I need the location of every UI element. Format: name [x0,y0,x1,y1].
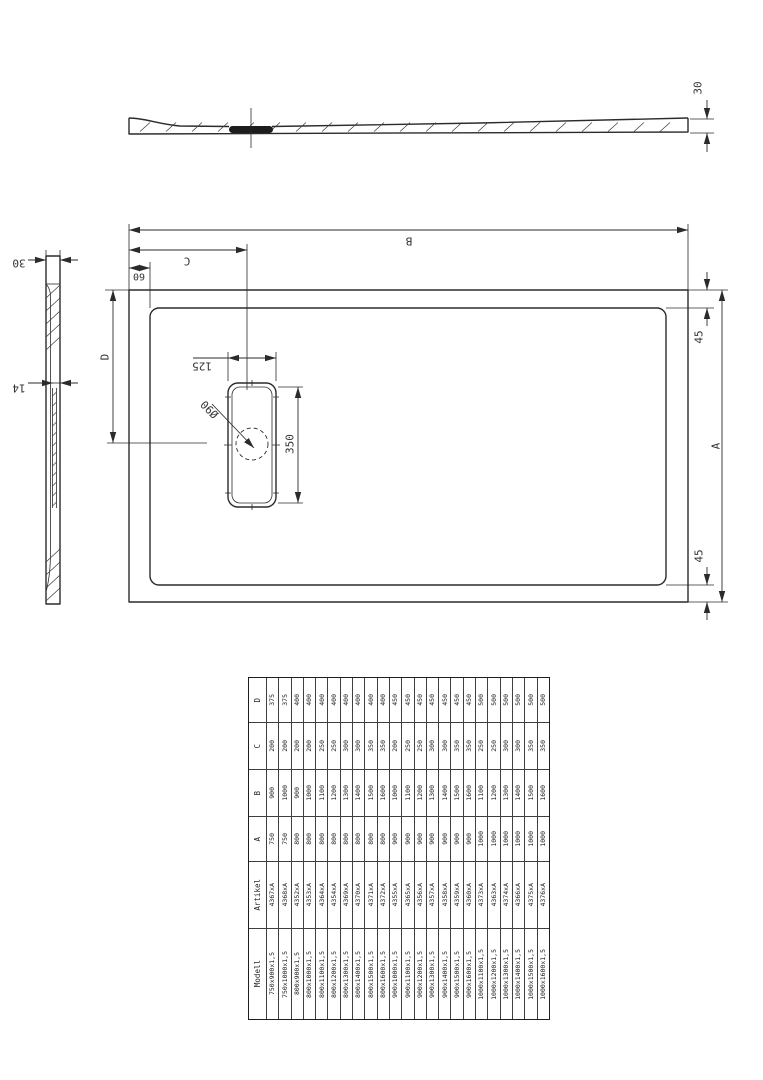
table-cell: 1000x1300x1,5 [500,928,512,1019]
table-cell: 500 [500,678,512,722]
table-cell-text: 250 [417,740,424,752]
top-profile-view: 30 [129,81,714,152]
dim-drain-offset-x: C [184,255,191,268]
table-cell: 200 [291,722,303,769]
table-cell-text: 1600 [466,785,473,801]
table-cell-text: 400 [380,694,387,706]
table-cell: 350 [450,722,462,769]
table-cell-text: 800x1200x1,5 [331,951,338,998]
table-cell: 900 [414,816,426,861]
table-cell-text: 750x900x1,5 [269,952,276,995]
table-cell: 1400 [438,769,450,816]
table-cell: 900x1500x1,5 [450,928,462,1019]
table-header-cell: Artikel [249,861,266,928]
table-cell-text: 250 [319,740,326,752]
table-cell: 1600 [463,769,475,816]
table-cell: 900x1000x1,5 [389,928,401,1019]
table-cell: 450 [389,678,401,722]
table-cell-text: 800 [368,833,375,845]
table-cell-text: 1200 [491,785,498,801]
table-header-text: D [254,698,262,703]
table-cell-text: 900x1300x1,5 [429,951,436,998]
table-cell-text: 1000 [306,785,313,801]
table-cell-text: 300 [343,740,350,752]
table-cell-text: 800 [355,833,362,845]
table-cell-text: 1000x1300x1,5 [503,949,510,1000]
drain-hole-circle [236,428,268,460]
dim-corner-top: 45 [693,330,706,343]
plan-view: Ø90 B C 60 125 350 D [99,224,729,620]
table-cell: 1000 [475,816,487,861]
table-cell: 1000 [512,816,524,861]
table-cell-text: 1000 [491,831,498,847]
table-cell-text: 800 [306,833,313,845]
dim-profile-height: 30 [692,81,705,94]
table-cell: 250 [475,722,487,769]
table-header-cell: C [249,722,266,769]
table-cell-text: 450 [466,694,473,706]
table-cell-text: 1000x1600x1,5 [540,949,547,1000]
table-cell-text: 4369xA [343,883,350,906]
table-cell: 300 [426,722,438,769]
table-cell-text: 450 [392,694,399,706]
table-cell-text: 900 [269,787,276,799]
table-cell-text: 900 [417,833,424,845]
table-cell-text: 1400 [355,785,362,801]
table-cell-text: 450 [405,694,412,706]
table-cell-text: 900x1000x1,5 [392,951,399,998]
table-cell: 900x1600x1,5 [463,928,475,1019]
table-cell: 4357xA [426,861,438,928]
table-cell-text: 250 [405,740,412,752]
table-cell: 250 [327,722,339,769]
table-cell-text: 800x900x1,5 [294,952,301,995]
table-cell-text: 500 [540,694,547,706]
table-cell-text: 1500 [368,785,375,801]
table-cell-text: 4373xA [478,883,485,906]
table-cell-text: 750 [282,833,289,845]
table-cell-text: 250 [491,740,498,752]
table-cell-text: 1600 [540,785,547,801]
table-cell: 4360xA [463,861,475,928]
table-cell-text: 1000x1500x1,5 [528,949,535,1000]
table-cell: 300 [438,722,450,769]
table-cell-text: 1500 [528,785,535,801]
table-header-cell: B [249,769,266,816]
table-cell: 4375xA [524,861,536,928]
table-cell: 450 [450,678,462,722]
table-cell-text: 900x1500x1,5 [454,951,461,998]
table-cell-text: 4359xA [454,883,461,906]
spec-table: DCBAArtikelModell3752009007504367xA750x9… [248,677,550,1020]
table-cell-text: 300 [442,740,449,752]
table-cell: 350 [364,722,376,769]
table-cell: 450 [401,678,413,722]
table-cell: 1100 [475,769,487,816]
table-cell: 1000x1500x1,5 [524,928,536,1019]
table-cell: 800 [327,816,339,861]
table-cell-text: 4357xA [429,883,436,906]
table-cell-text: 900 [405,833,412,845]
table-cell: 250 [315,722,327,769]
table-cell: 1400 [352,769,364,816]
table-cell-text: 800x1500x1,5 [368,951,375,998]
table-cell-text: 900x1600x1,5 [466,951,473,998]
table-header-text: Modell [254,960,262,987]
table-cell: 4364xA [315,861,327,928]
table-cell-text: 350 [528,740,535,752]
dim-corner-bottom: 45 [693,549,706,562]
table-cell: 300 [352,722,364,769]
table-cell: 4374xA [500,861,512,928]
table-cell-text: 900 [442,833,449,845]
table-cell-text: 300 [429,740,436,752]
table-cell-text: 200 [282,740,289,752]
table-cell-text: 1000x1200x1,5 [491,949,498,1000]
table-cell-text: 500 [491,694,498,706]
table-cell: 1600 [537,769,549,816]
table-cell: 800x1500x1,5 [364,928,376,1019]
table-cell-text: 900 [392,833,399,845]
table-cell: 1200 [414,769,426,816]
dim-drain-width: 125 [192,360,212,373]
table-cell: 1000 [487,816,499,861]
table-cell-text: 800x1100x1,5 [319,951,326,998]
table-cell: 900 [291,769,303,816]
table-cell: 1000x1400x1,5 [512,928,524,1019]
dim-drain-length: 350 [284,434,297,454]
table-cell: 4367xA [266,861,278,928]
table-cell: 1100 [401,769,413,816]
table-cell-text: 375 [269,694,276,706]
table-header-cell: D [249,678,266,722]
table-cell: 375 [266,678,278,722]
table-cell-text: 400 [368,694,375,706]
table-cell-text: 350 [368,740,375,752]
table-cell-text: 450 [429,694,436,706]
table-cell: 450 [463,678,475,722]
table-cell: 450 [438,678,450,722]
table-cell: 800x1300x1,5 [340,928,352,1019]
table-cell: 800x1400x1,5 [352,928,364,1019]
table-cell-text: 350 [466,740,473,752]
table-cell: 350 [524,722,536,769]
table-cell: 250 [414,722,426,769]
table-cell-text: 4367xA [269,883,276,906]
table-cell: 800x900x1,5 [291,928,303,1019]
table-cell-text: 1000x1100x1,5 [478,949,485,1000]
table-cell-text: 450 [417,694,424,706]
table-cell-text: 4354xA [331,883,338,906]
table-cell-text: 1600 [380,785,387,801]
table-cell-text: 750 [269,833,276,845]
table-cell: 1000 [537,816,549,861]
table-cell-text: 800x1300x1,5 [343,951,350,998]
table-cell-text: 4364xA [319,883,326,906]
table-cell: 900 [426,816,438,861]
table-cell: 350 [537,722,549,769]
table-cell-text: 4370xA [355,883,362,906]
table-cell-text: 4376xA [540,883,547,906]
table-cell: 200 [303,722,315,769]
table-cell-text: 4352xA [294,883,301,906]
table-cell-text: 750x1000x1,5 [282,951,289,998]
table-cell-text: 400 [294,694,301,706]
table-cell: 1000x1600x1,5 [537,928,549,1019]
table-cell: 800 [352,816,364,861]
table-cell: 300 [340,722,352,769]
table-cell-text: 4363xA [491,883,498,906]
table-cell: 750 [266,816,278,861]
table-cell: 200 [389,722,401,769]
table-cell-text: 400 [319,694,326,706]
shower-tray-drawing: 30 30 14 Ø90 [0,0,763,660]
table-cell-text: 900 [429,833,436,845]
table-cell-text: 4372xA [380,883,387,906]
table-cell: 500 [524,678,536,722]
dim-side-height: 30 [12,257,25,270]
table-cell: 900x1100x1,5 [401,928,413,1019]
table-cell: 900x1400x1,5 [438,928,450,1019]
table-cell-text: 1000 [392,785,399,801]
table-cell: 1000 [389,769,401,816]
table-cell-text: 250 [331,740,338,752]
table-cell: 1000x1100x1,5 [475,928,487,1019]
table-cell: 4356xA [414,861,426,928]
table-cell-text: 500 [528,694,535,706]
table-cell-text: 200 [269,740,276,752]
table-cell-text: 450 [454,694,461,706]
table-cell: 750x900x1,5 [266,928,278,1019]
table-cell: 400 [377,678,389,722]
table-cell-text: 4355xA [392,883,399,906]
table-cell: 1000 [500,816,512,861]
drain-recess: Ø90 [198,380,280,510]
dim-plan-length: B [405,235,412,248]
table-cell-text: 300 [355,740,362,752]
table-cell: 400 [291,678,303,722]
table-cell: 500 [512,678,524,722]
table-header-cell: A [249,816,266,861]
table-cell-text: 500 [478,694,485,706]
table-cell: 1600 [377,769,389,816]
table-cell-text: 4371xA [368,883,375,906]
table-cell: 900 [401,816,413,861]
table-cell-text: 450 [442,694,449,706]
table-cell: 1500 [364,769,376,816]
table-cell-text: 1000 [282,785,289,801]
table-cell: 900 [389,816,401,861]
table-cell: 900 [266,769,278,816]
table-cell: 800x1200x1,5 [327,928,339,1019]
table-cell: 300 [500,722,512,769]
table-cell: 4376xA [537,861,549,928]
table-cell-text: 1100 [478,785,485,801]
table-cell-text: 4366xA [515,883,522,906]
dim-side-wall: 14 [12,382,26,395]
table-cell: 1300 [500,769,512,816]
table-cell: 250 [401,722,413,769]
table-cell: 400 [352,678,364,722]
table-cell-text: 200 [294,740,301,752]
table-cell: 500 [487,678,499,722]
table-cell: 400 [364,678,376,722]
table-cell-text: 1000 [540,831,547,847]
table-cell: 400 [327,678,339,722]
table-cell-text: 1300 [503,785,510,801]
table-cell-text: 1000x1400x1,5 [515,949,522,1000]
table-cell: 1000 [278,769,290,816]
table-cell-text: 800x1400x1,5 [355,951,362,998]
table-cell-text: 400 [331,694,338,706]
table-cell: 1400 [512,769,524,816]
table-cell-text: 350 [380,740,387,752]
table-cell: 800x1600x1,5 [377,928,389,1019]
technical-drawing-page: 30 30 14 Ø90 [0,0,763,1080]
table-cell: 1000 [524,816,536,861]
table-cell-text: 4375xA [528,883,535,906]
table-cell: 800 [303,816,315,861]
table-cell: 450 [414,678,426,722]
table-cell: 750x1000x1,5 [278,928,290,1019]
table-cell-text: 800 [380,833,387,845]
dim-drain-offset-y: D [99,354,112,361]
table-cell: 900 [463,816,475,861]
table-cell: 4372xA [377,861,389,928]
table-cell: 1500 [450,769,462,816]
table-header-cell: Modell [249,928,266,1019]
table-cell: 800 [315,816,327,861]
table-cell-text: 900x1400x1,5 [442,951,449,998]
table-cell: 800 [364,816,376,861]
table-cell-text: 400 [355,694,362,706]
table-cell-text: 900 [294,787,301,799]
table-cell-text: 300 [503,740,510,752]
table-cell-text: 1400 [442,785,449,801]
table-cell-text: 400 [306,694,313,706]
table-cell: 4365xA [401,861,413,928]
table-cell: 4359xA [450,861,462,928]
table-cell: 4358xA [438,861,450,928]
table-cell: 1500 [524,769,536,816]
table-cell: 4366xA [512,861,524,928]
table-cell-text: 350 [454,740,461,752]
table-cell: 750 [278,816,290,861]
table-cell: 4368xA [278,861,290,928]
table-cell-text: 250 [478,740,485,752]
table-cell-text: 1000 [528,831,535,847]
table-cell-text: 1100 [319,785,326,801]
table-cell: 250 [487,722,499,769]
table-cell: 1000 [303,769,315,816]
table-header-text: Artikel [254,879,262,911]
table-cell-text: 900 [454,833,461,845]
table-cell-text: 350 [540,740,547,752]
table-cell: 900 [450,816,462,861]
table-cell-text: 500 [503,694,510,706]
table-cell: 450 [426,678,438,722]
table-cell: 500 [537,678,549,722]
table-cell-text: 1100 [405,785,412,801]
table-cell-text: 1000 [515,831,522,847]
table-cell: 800 [377,816,389,861]
table-cell: 800x1000x1,5 [303,928,315,1019]
table-cell: 800x1100x1,5 [315,928,327,1019]
table-header-text: C [254,744,262,749]
table-cell-text: 1300 [429,785,436,801]
table-cell: 4363xA [487,861,499,928]
table-cell-text: 900x1200x1,5 [417,951,424,998]
table-cell: 1100 [315,769,327,816]
table-cell-text: 800x1000x1,5 [306,951,313,998]
table-cell: 1000x1200x1,5 [487,928,499,1019]
table-cell: 4373xA [475,861,487,928]
table-cell-text: 1400 [515,785,522,801]
table-cell-text: 900x1100x1,5 [405,951,412,998]
table-cell: 900 [438,816,450,861]
table-cell-text: 200 [392,740,399,752]
table-cell-text: 1000 [503,831,510,847]
table-cell: 1200 [327,769,339,816]
table-cell-text: 800x1600x1,5 [380,951,387,998]
table-cell: 400 [315,678,327,722]
dim-drain-diameter: Ø90 [198,398,221,421]
table-cell: 1300 [340,769,352,816]
side-section-view: 30 14 [12,250,78,604]
dim-edge-offset: 60 [133,271,145,282]
table-cell: 375 [278,678,290,722]
table-cell: 400 [303,678,315,722]
table-cell-text: 1500 [454,785,461,801]
table-cell-text: 375 [282,694,289,706]
table-cell: 200 [266,722,278,769]
table-cell: 1300 [426,769,438,816]
dim-plan-width: A [710,442,723,449]
table-cell: 900x1200x1,5 [414,928,426,1019]
table-header-text: B [254,791,262,796]
table-cell-text: 4360xA [466,883,473,906]
table-cell: 4355xA [389,861,401,928]
table-cell-text: 1000 [478,831,485,847]
drain-channel-section [53,388,57,508]
table-cell: 4370xA [352,861,364,928]
table-cell: 4352xA [291,861,303,928]
table-cell: 4353xA [303,861,315,928]
table-cell: 500 [475,678,487,722]
table-cell: 350 [377,722,389,769]
table-cell: 800 [340,816,352,861]
table-cell-text: 4356xA [417,883,424,906]
table-cell-text: 800 [331,833,338,845]
table-cell-text: 200 [306,740,313,752]
table-cell-text: 800 [343,833,350,845]
table-cell-text: 4353xA [306,883,313,906]
table-cell-text: 4358xA [442,883,449,906]
table-cell-text: 1300 [343,785,350,801]
table-cell: 900x1300x1,5 [426,928,438,1019]
table-cell-text: 1200 [417,785,424,801]
table-cell: 4369xA [340,861,352,928]
table-cell: 800 [291,816,303,861]
table-cell: 4354xA [327,861,339,928]
table-cell: 200 [278,722,290,769]
table-cell: 4371xA [364,861,376,928]
table-cell-text: 800 [319,833,326,845]
table-cell-text: 400 [343,694,350,706]
table-header-text: A [254,837,262,842]
table-cell: 300 [512,722,524,769]
table-cell-text: 300 [515,740,522,752]
